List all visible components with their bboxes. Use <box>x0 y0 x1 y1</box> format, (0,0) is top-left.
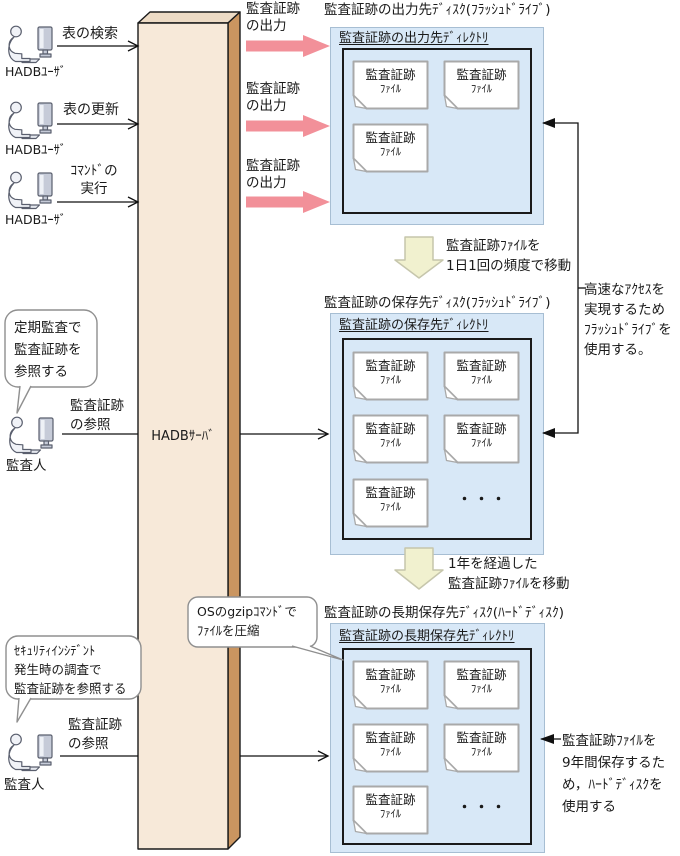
daily-move-label: 監査証跡ﾌｧｲﾙを 1日1回の頻度で移動 <box>446 236 571 276</box>
user2-label: HADBﾕｰｻﾞ <box>5 141 66 158</box>
save-directory-label: 監査証跡の保存先ﾃﾞｨﾚｸﾄﾘ <box>339 317 489 334</box>
hadb-user-icon <box>9 172 52 208</box>
user1-action: 表の検索 <box>62 26 118 43</box>
output-arrow-label-3: 監査証跡 の出力 <box>246 158 300 192</box>
periodic-audit-bubble-text: 定期監査で 監査証跡を 参照する <box>14 317 82 383</box>
incident-audit-bubble-tail <box>17 698 31 722</box>
auditor-icon <box>9 734 52 770</box>
save-disk-title: 監査証跡の保存先ﾃﾞｨｽｸ(ﾌﾗｯｼｭﾄﾞﾗｲﾌﾞ) <box>324 295 551 312</box>
yearly-move-label: 1年を経過した 監査証跡ﾌｧｲﾙを移動 <box>448 554 570 594</box>
incident-audit-bubble-text: ｾｷｭﾘﾃｨｲﾝｼﾃﾞﾝﾄ 発生時の調査で 監査証跡を参照する <box>14 641 127 698</box>
flash-drive-note: 高速なｱｸｾｽを 実現するため ﾌﾗｯｼｭﾄﾞﾗｲﾌﾞを 使用する。 <box>584 280 672 360</box>
hadb-user-icon <box>9 102 52 138</box>
output-directory-label: 監査証跡の出力先ﾃﾞｨﾚｸﾄﾘ <box>339 30 489 47</box>
server-label: HADBｻｰﾊﾞ <box>138 428 228 445</box>
user1-label: HADBﾕｰｻﾞ <box>5 63 66 80</box>
user2-action: 表の更新 <box>63 102 119 119</box>
gzip-note: OSのgzipｺﾏﾝﾄﾞで ﾌｧｲﾙを圧縮 <box>197 602 297 640</box>
auditor2-action: 監査証跡 の参照 <box>68 716 122 754</box>
more-files-ellipsis: ・・・ <box>443 492 523 509</box>
longterm-directory-label: 監査証跡の長期保存先ﾃﾞｨﾚｸﾄﾘ <box>339 628 515 645</box>
output-arrow-label-2: 監査証跡 の出力 <box>246 81 300 115</box>
move-down-arrow <box>395 237 443 589</box>
auditor1-label: 監査人 <box>6 458 47 475</box>
more-files-ellipsis: ・・・ <box>443 800 523 817</box>
user3-action: ｺﾏﾝﾄﾞの 実行 <box>62 162 126 198</box>
longterm-disk-title: 監査証跡の長期保存先ﾃﾞｨｽｸ(ﾊｰﾄﾞﾃﾞｨｽｸ) <box>324 605 564 622</box>
hdd-note: 監査証跡ﾌｧｲﾙを 9年間保存するた め，ﾊｰﾄﾞﾃﾞｨｽｸを 使用する <box>562 730 665 818</box>
flash-note-bracket <box>542 118 586 438</box>
auditor-icon <box>10 417 53 453</box>
hdd-note-arrow <box>540 734 561 744</box>
gzip-note-bubble-tail <box>292 646 343 660</box>
audit-trail-diagram: 監査証跡ﾌｧｲﾙ 監査証跡ﾌｧｲﾙ 監査証跡ﾌｧｲﾙ 監査証跡ﾌｧｲﾙ 監査証跡… <box>0 0 680 856</box>
periodic-audit-bubble-tail <box>17 386 31 413</box>
output-disk-title: 監査証跡の出力先ﾃﾞｨｽｸ(ﾌﾗｯｼｭﾄﾞﾗｲﾌﾞ) <box>324 2 551 19</box>
auditor2-label: 監査人 <box>4 777 45 794</box>
output-arrow-label-1: 監査証跡 の出力 <box>246 1 300 35</box>
auditor1-action: 監査証跡 の参照 <box>70 397 124 435</box>
hadb-user-icon <box>9 26 52 62</box>
user3-label: HADBﾕｰｻﾞ <box>5 211 66 228</box>
